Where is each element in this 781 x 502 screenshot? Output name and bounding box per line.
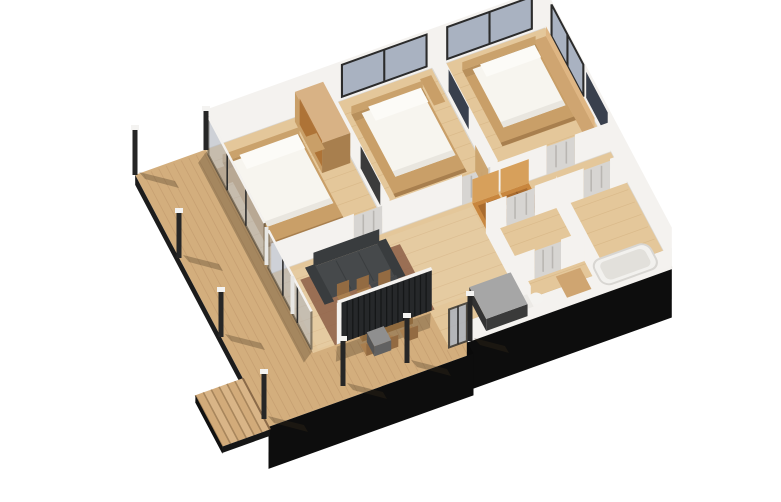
floor-plan-render: [0, 0, 781, 502]
post: [131, 125, 139, 175]
scene-projection: [67, 0, 715, 480]
